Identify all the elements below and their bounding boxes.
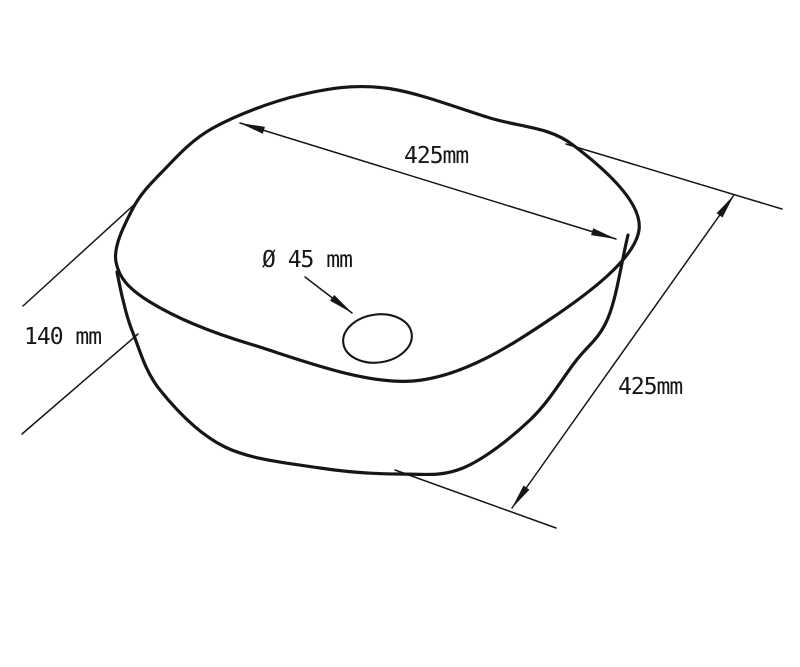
depth-extension-line-top [566,144,782,209]
basin-rim-outline [116,87,640,382]
basin-body-outline [117,235,628,474]
drain-hole-outline [340,310,415,367]
dimension-drawing-canvas: 425mm 425mm 140 mm Ø 45 mm [0,0,800,667]
depth-extension-line-bottom [395,470,556,528]
height-dimension-label: 140 mm [24,324,101,350]
width-dimension-line [240,123,616,239]
width-dimension-label: 425mm [404,143,468,169]
drain-diameter-label: Ø 45 mm [262,247,352,273]
washbasin-technical-drawing: 425mm 425mm 140 mm Ø 45 mm [0,0,800,667]
depth-dimension-label: 425mm [618,374,682,400]
depth-dimension-line [512,195,734,508]
drain-leader-arrow [305,277,352,313]
